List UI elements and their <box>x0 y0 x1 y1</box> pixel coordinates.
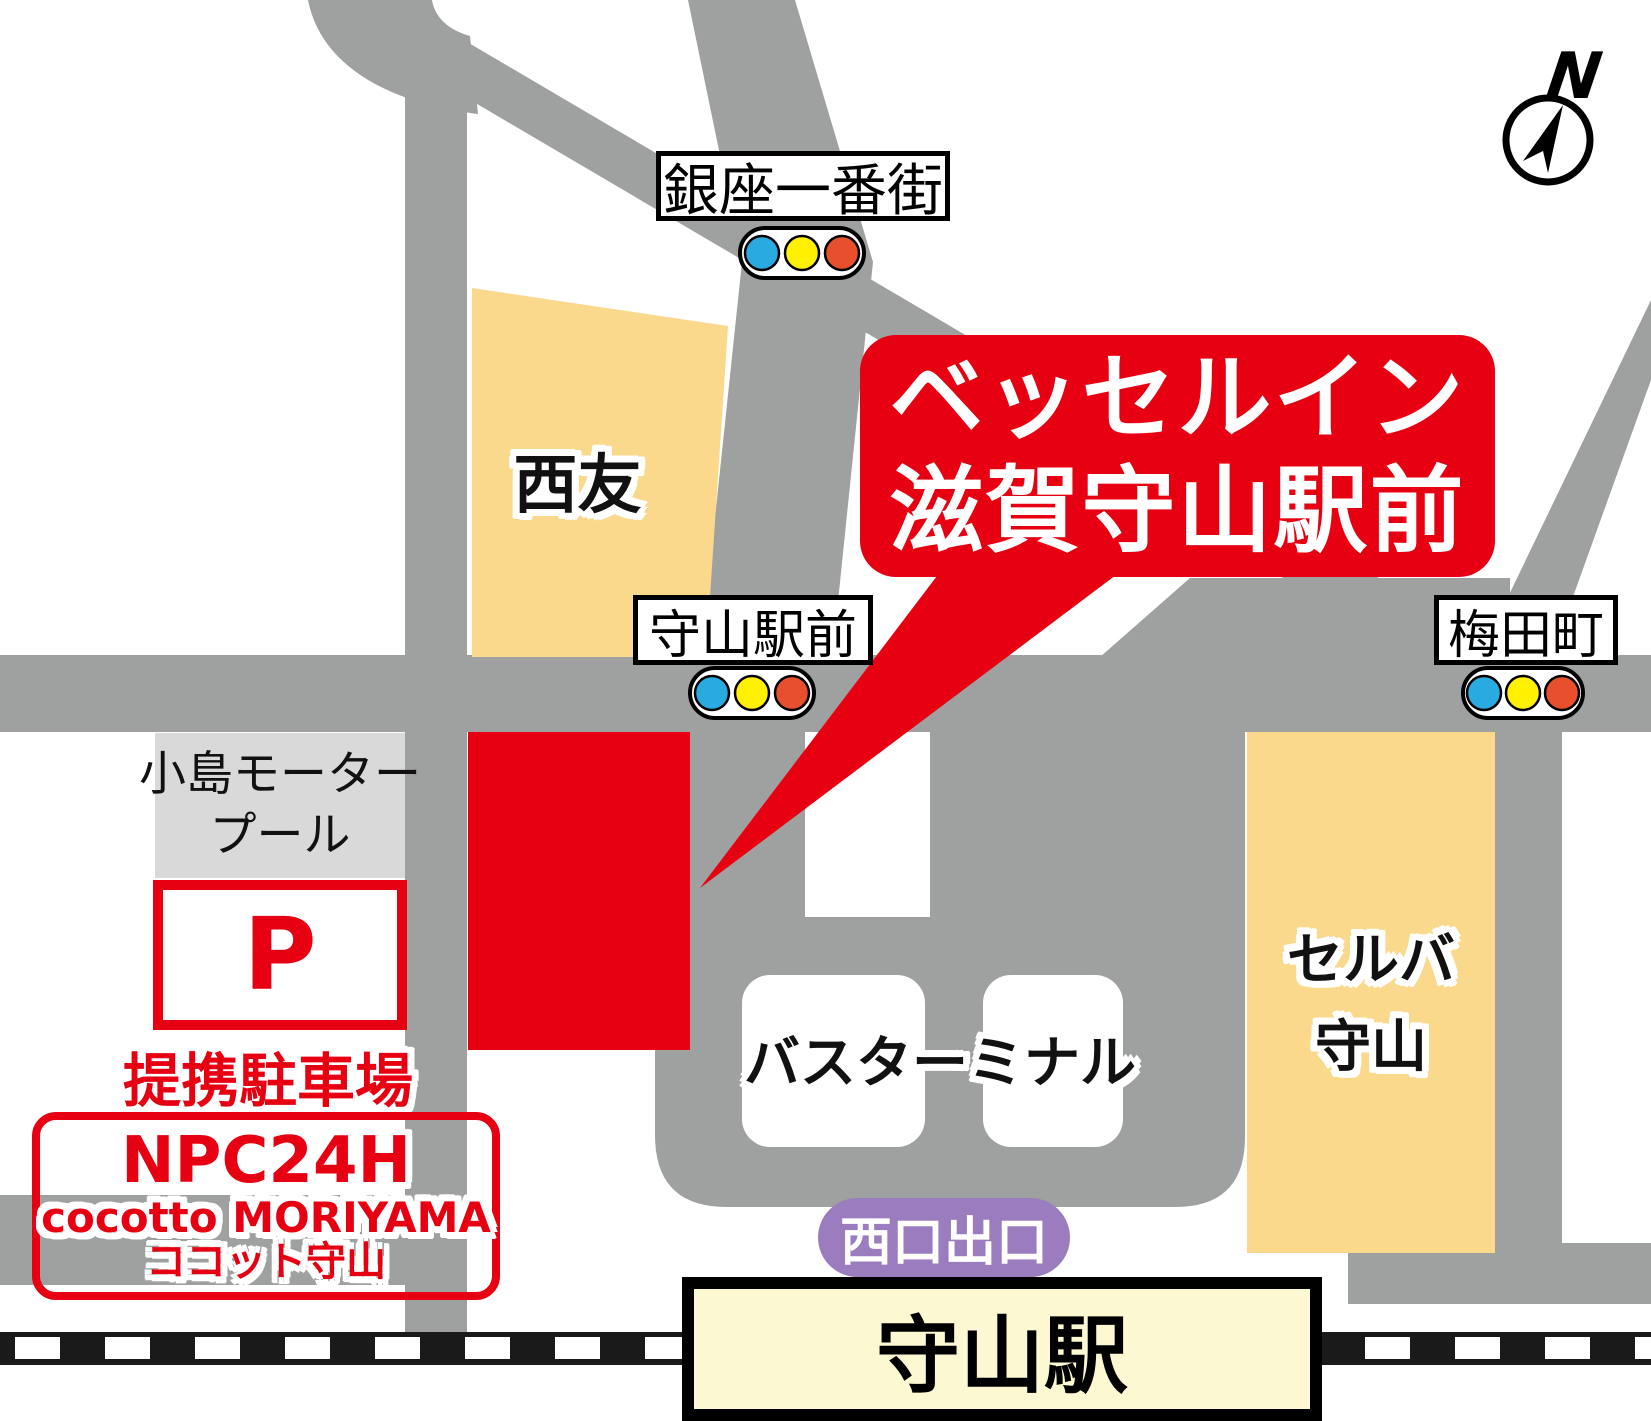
building-label-kojima-line2: プール <box>210 806 351 866</box>
building-label-kojima: 小島モーター プール <box>110 748 450 863</box>
compass-north-label: N <box>1544 40 1623 104</box>
station-box: 守山駅 <box>682 1277 1322 1421</box>
road-station-approach-lower <box>690 732 805 918</box>
parking-npc-box: NPC24H cocotto MORIYAMA ココット守山 <box>32 1112 500 1300</box>
traffic-light-icon-umedacho <box>1463 668 1583 718</box>
parking-p-mark: P <box>243 905 316 1005</box>
access-map: N 銀座一番街 守山駅前 梅田町 ベッセルイン 滋賀守山駅前 西友 セルバ 守山… <box>0 0 1651 1421</box>
building-label-selva: セルバ 守山 <box>1261 915 1481 1095</box>
parking-caption: 提携駐車場 <box>88 1040 448 1112</box>
hotel-callout: ベッセルイン 滋賀守山駅前 <box>860 335 1495 577</box>
hotel-callout-line1: ベッセルイン <box>889 343 1465 456</box>
parking-p-box: P <box>153 880 407 1030</box>
parking-npc-line3: ココット守山 <box>146 1240 386 1284</box>
hotel-callout-line2: 滋賀守山駅前 <box>889 456 1465 569</box>
road-south-connector <box>930 732 1245 918</box>
building-label-seiyu: 西友 <box>480 440 675 520</box>
intersection-label-umedacho: 梅田町 <box>1434 595 1618 665</box>
intersection-label-ginza: 銀座一番街 <box>656 151 950 221</box>
parking-npc-line1: NPC24H <box>121 1128 411 1195</box>
road-right-vertical <box>1495 732 1562 1247</box>
building-label-bus-terminal: バスターミナル <box>720 1018 1160 1098</box>
parking-npc-line2: cocotto MORIYAMA <box>41 1196 491 1240</box>
building-label-kojima-line1: 小島モーター <box>139 745 421 805</box>
traffic-light-icon-ekimae <box>690 668 814 718</box>
building-hotel <box>468 732 690 1050</box>
building-label-selva-line1: セルバ <box>1287 918 1455 1005</box>
traffic-light-icon-ginza <box>740 228 864 278</box>
station-exit-badge: 西口出口 <box>818 1198 1070 1277</box>
intersection-label-ekimae: 守山駅前 <box>633 595 873 665</box>
building-label-selva-line2: 守山 <box>1315 1005 1427 1092</box>
